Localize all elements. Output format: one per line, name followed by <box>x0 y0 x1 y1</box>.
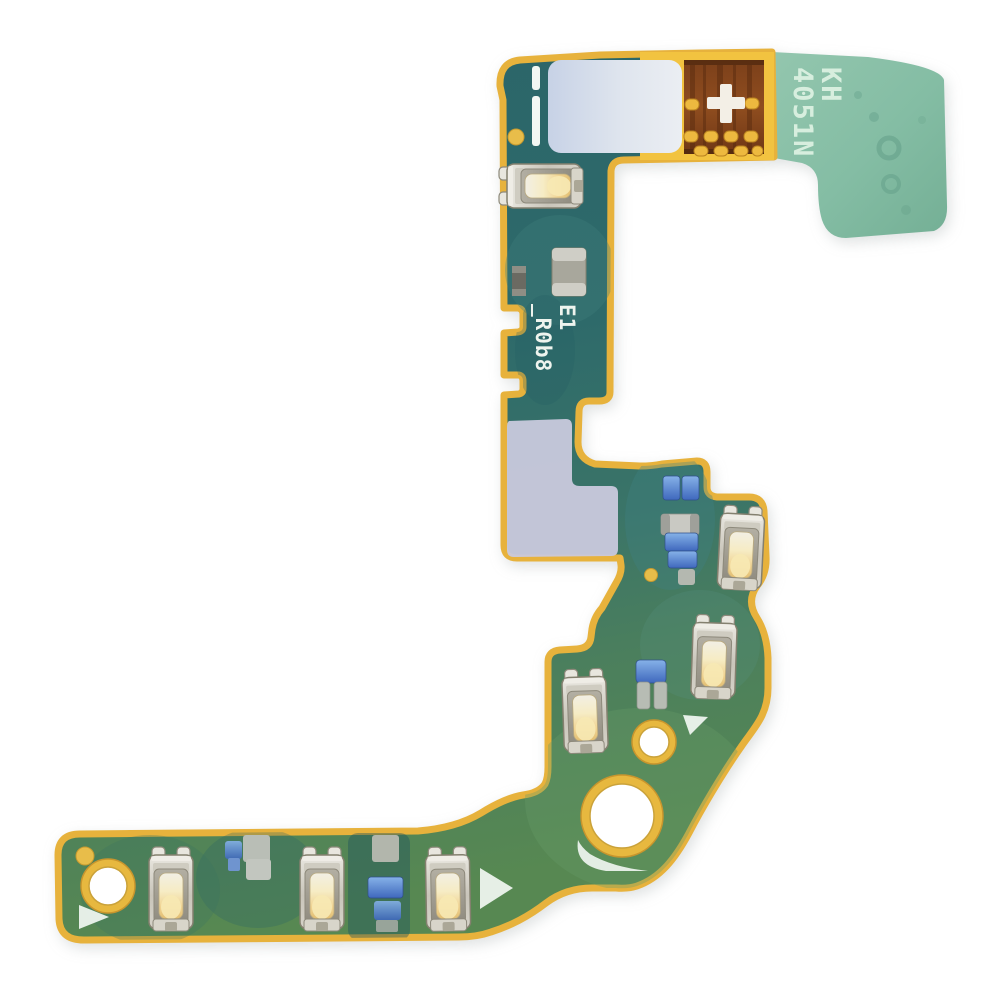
contact-clip <box>499 164 583 208</box>
tab-text-line1: KH <box>815 67 846 104</box>
board-text-line1: E1 <box>555 304 579 331</box>
smd-resistor <box>661 514 699 535</box>
board-text-line2: _R0b8 <box>531 304 555 372</box>
fiducial-dot <box>76 847 94 865</box>
contact-clip <box>149 847 193 931</box>
contact-clip <box>425 847 470 932</box>
smd-blue-capacitor <box>663 476 680 500</box>
contact-clip <box>561 668 608 753</box>
mounting-hole <box>632 720 676 764</box>
smd-capacitor <box>552 248 586 296</box>
flex-tab: KH 4051N <box>772 52 947 238</box>
smd-blue-capacitor <box>682 476 699 500</box>
contact-clip <box>717 505 765 591</box>
tab-text-line2: 4051N <box>787 67 818 158</box>
silkscreen-dash <box>532 96 540 146</box>
mounting-hole <box>581 775 663 857</box>
smd-chip <box>678 569 695 585</box>
product-photo: KH 4051N <box>0 0 1000 1000</box>
contact-clip <box>300 847 344 931</box>
mounting-hole <box>81 859 135 913</box>
protective-sticker-top <box>548 60 682 153</box>
contact-clip <box>691 614 738 699</box>
fiducial-dot <box>508 129 524 145</box>
smd-blue-capacitor <box>668 551 697 568</box>
smd-chip <box>512 266 526 296</box>
smd-blue-capacitor <box>665 533 698 551</box>
silkscreen-dash <box>532 66 540 90</box>
pcb-flex-cable-photo: KH 4051N <box>0 0 1000 1000</box>
protective-sticker-bend <box>507 419 618 557</box>
fiducial-dot <box>645 569 658 582</box>
